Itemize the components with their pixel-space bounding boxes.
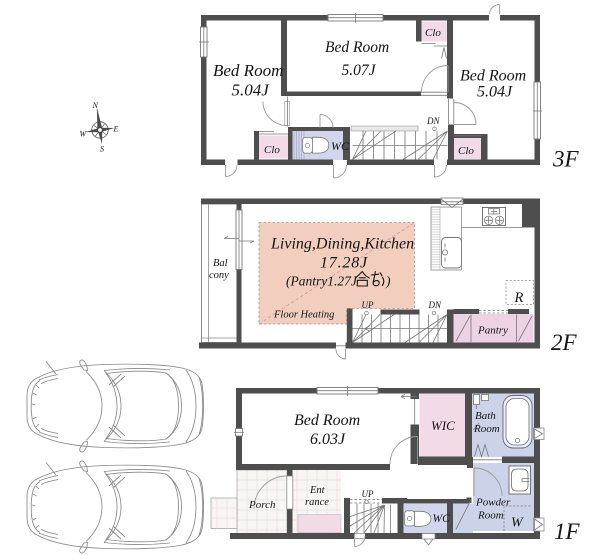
svg-text:N: N <box>92 101 99 110</box>
svg-text:Ent: Ent <box>309 485 326 496</box>
svg-text:DN: DN <box>428 300 442 310</box>
svg-text:1F: 1F <box>554 519 581 544</box>
svg-text:Bal: Bal <box>213 258 228 269</box>
svg-text:17.28J: 17.28J <box>320 255 368 272</box>
svg-text:Bed Room: Bed Room <box>325 39 389 56</box>
svg-text:Pantry: Pantry <box>477 325 508 337</box>
svg-text:Floor Heating: Floor Heating <box>273 310 334 321</box>
svg-text:UP: UP <box>362 489 374 499</box>
svg-text:rance: rance <box>305 497 329 508</box>
svg-text:WC: WC <box>331 139 350 153</box>
svg-text:(Pantry1.27J: (Pantry1.27J <box>286 274 358 289</box>
svg-text:2F: 2F <box>551 330 578 355</box>
svg-text:Clo: Clo <box>425 27 441 39</box>
svg-text:cony: cony <box>209 270 229 281</box>
svg-text:Living,Dining,Kitchen: Living,Dining,Kitchen <box>270 236 414 253</box>
svg-text:Room: Room <box>477 510 504 522</box>
svg-text:R: R <box>514 290 524 306</box>
svg-text:Clo: Clo <box>264 144 280 156</box>
svg-text:Bed Room: Bed Room <box>294 412 360 429</box>
svg-text:): ) <box>385 274 391 289</box>
svg-text:Powder: Powder <box>475 497 511 509</box>
svg-text:5.04J: 5.04J <box>232 81 271 100</box>
svg-text:WIC: WIC <box>431 418 455 433</box>
svg-text:DN: DN <box>426 116 440 126</box>
svg-text:Clo: Clo <box>458 145 474 157</box>
svg-text:Bed Room: Bed Room <box>213 61 283 80</box>
svg-text:S: S <box>100 145 104 154</box>
svg-text:Bed Room: Bed Room <box>460 68 526 85</box>
svg-text:Bath: Bath <box>475 410 496 422</box>
svg-text:3F: 3F <box>552 147 580 172</box>
svg-text:E: E <box>113 125 119 134</box>
svg-text:Room: Room <box>473 423 500 435</box>
svg-text:W: W <box>511 516 524 531</box>
svg-text:WC: WC <box>433 513 451 525</box>
svg-text:6.03J: 6.03J <box>310 431 346 448</box>
svg-text:5.07J: 5.07J <box>342 62 377 79</box>
svg-text:Porch: Porch <box>248 499 276 511</box>
svg-text:5.04J: 5.04J <box>477 84 513 101</box>
svg-text:UP: UP <box>362 300 374 310</box>
